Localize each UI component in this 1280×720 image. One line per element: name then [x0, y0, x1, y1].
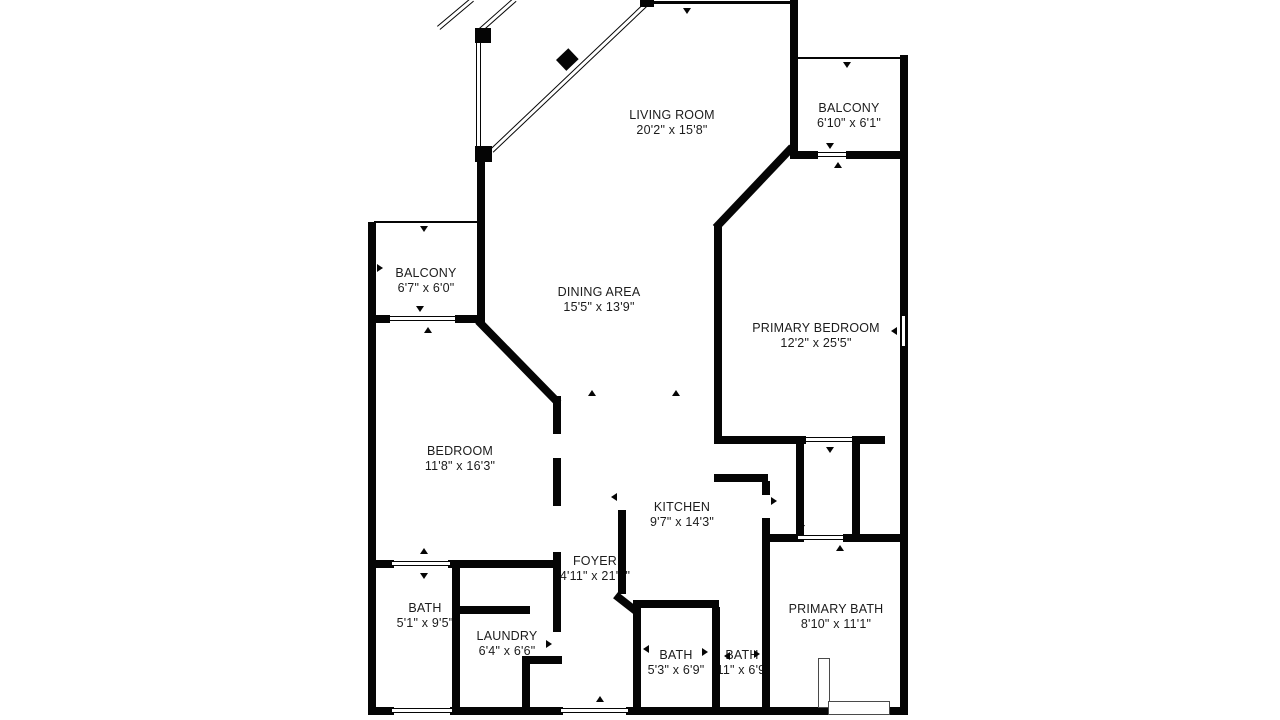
wall-segment	[553, 458, 561, 506]
door-opening	[798, 535, 843, 540]
door-tick-icon	[834, 162, 842, 168]
room-name: PRIMARY BEDROOM	[752, 321, 880, 336]
room-dimensions: 20'2" x 15'8"	[629, 123, 715, 138]
door-tick-icon	[420, 573, 428, 579]
sliding-door	[818, 152, 846, 157]
wall-segment	[762, 534, 798, 542]
room-name: LAUNDRY	[477, 629, 538, 644]
window	[476, 40, 481, 148]
wall-segment	[553, 396, 561, 434]
wall-segment	[477, 150, 485, 322]
wall-segment	[852, 436, 885, 444]
wall-segment	[712, 607, 720, 714]
door-tick-icon	[420, 226, 428, 232]
wall-segment	[452, 560, 460, 714]
window-mullion	[475, 28, 491, 43]
room-dimensions: 6'10" x 6'1"	[817, 116, 881, 131]
door-tick-icon	[643, 645, 649, 653]
door-tick-icon	[843, 62, 851, 68]
room-label-dining-area: DINING AREA 15'5" x 13'9"	[558, 285, 641, 315]
room-dimensions: 15'5" x 13'9"	[558, 300, 641, 315]
door-tick-icon	[683, 8, 691, 14]
wall-segment	[648, 1, 790, 4]
door-tick-icon	[546, 640, 552, 648]
balcony-railing	[374, 221, 477, 223]
wall-segment	[368, 707, 394, 715]
door-tick-icon	[724, 652, 730, 660]
floor-plan: LIVING ROOM 20'2" x 15'8" BALCONY 6'10" …	[0, 0, 1280, 720]
room-name: PRIMARY BATH	[789, 602, 884, 617]
room-label-primary-bedroom: PRIMARY BEDROOM 12'2" x 25'5"	[752, 321, 880, 351]
door-tick-icon	[596, 696, 604, 702]
door-tick-icon	[836, 545, 844, 551]
room-dimensions: 9'7" x 14'3"	[650, 515, 714, 530]
door-tick-icon	[771, 497, 777, 505]
entry-door	[561, 708, 628, 713]
wall-segment	[762, 542, 770, 714]
wall-segment	[846, 151, 908, 159]
wall-segment	[522, 664, 530, 714]
wall-segment	[633, 600, 719, 608]
room-name: BALCONY	[395, 266, 456, 281]
wall-segment	[714, 474, 768, 482]
wall-segment	[796, 444, 804, 542]
wall-segment	[475, 318, 561, 406]
window	[490, 1, 649, 153]
wall-segment	[714, 226, 722, 378]
room-name: BALCONY	[817, 101, 881, 116]
door-tick-icon	[826, 447, 834, 453]
door-tick-icon	[420, 548, 428, 554]
door-tick-icon	[377, 264, 383, 272]
door-tick-icon	[424, 327, 432, 333]
room-name: DINING AREA	[558, 285, 641, 300]
wall-segment	[618, 510, 626, 594]
wall-segment	[790, 151, 818, 159]
window-mullion	[640, 0, 654, 7]
room-name: KITCHEN	[650, 500, 714, 515]
wall-segment	[368, 222, 376, 714]
wall-segment	[790, 0, 798, 158]
wall-segment	[452, 606, 530, 614]
window-mullion	[475, 146, 492, 162]
room-dimensions: 11'8" x 16'3"	[425, 459, 495, 474]
wall-segment	[448, 560, 561, 568]
wall-segment	[843, 534, 903, 542]
room-label-laundry: LAUNDRY 6'4" x 6'6"	[477, 629, 538, 659]
door-tick-icon	[611, 493, 617, 501]
balcony-railing	[797, 57, 900, 59]
wall-segment	[762, 481, 770, 495]
sliding-door	[390, 316, 455, 321]
room-label-kitchen: KITCHEN 9'7" x 14'3"	[650, 500, 714, 530]
door-tick-icon	[826, 143, 834, 149]
room-dimensions: 12'2" x 25'5"	[752, 336, 880, 351]
closet-opening	[806, 437, 852, 442]
wall-segment	[633, 607, 641, 714]
bathtub	[828, 701, 890, 715]
wall-segment	[852, 444, 860, 542]
room-name: BATH	[648, 648, 705, 663]
wall-segment	[522, 656, 562, 664]
wall-segment	[714, 378, 722, 444]
room-name: BATH	[397, 601, 454, 616]
room-label-balcony-right: BALCONY 6'10" x 6'1"	[817, 101, 881, 131]
door-tick-icon	[754, 650, 760, 658]
room-label-bedroom: BEDROOM 11'8" x 16'3"	[425, 444, 495, 474]
window	[901, 316, 906, 346]
door-tick-icon	[588, 390, 596, 396]
room-label-bath-1: BATH 5'1" x 9'5"	[397, 601, 454, 631]
wall-segment	[368, 315, 390, 323]
room-label-primary-bath: PRIMARY BATH 8'10" x 11'1"	[789, 602, 884, 632]
window	[437, 0, 474, 30]
room-name: LIVING ROOM	[629, 108, 715, 123]
cased-opening	[392, 561, 450, 566]
door-tick-icon	[416, 306, 424, 312]
room-dimensions: 6'7" x 6'0"	[395, 281, 456, 296]
room-label-balcony-left: BALCONY 6'7" x 6'0"	[395, 266, 456, 296]
room-dimensions: 5'1" x 9'5"	[397, 616, 454, 631]
door-tick-icon	[891, 327, 897, 335]
window	[392, 708, 452, 713]
room-dimensions: 8'10" x 11'1"	[789, 617, 884, 632]
wall-segment	[713, 144, 795, 230]
room-label-living-room: LIVING ROOM 20'2" x 15'8"	[629, 108, 715, 138]
room-dimensions: 5'3" x 6'9"	[648, 663, 705, 678]
wall-segment	[450, 707, 563, 715]
wall-segment	[714, 436, 806, 444]
wall-segment	[368, 560, 394, 568]
room-name: BEDROOM	[425, 444, 495, 459]
door-tick-icon	[702, 648, 708, 656]
door-tick-icon	[672, 390, 680, 396]
room-label-bath-2: BATH 5'3" x 6'9"	[648, 648, 705, 678]
